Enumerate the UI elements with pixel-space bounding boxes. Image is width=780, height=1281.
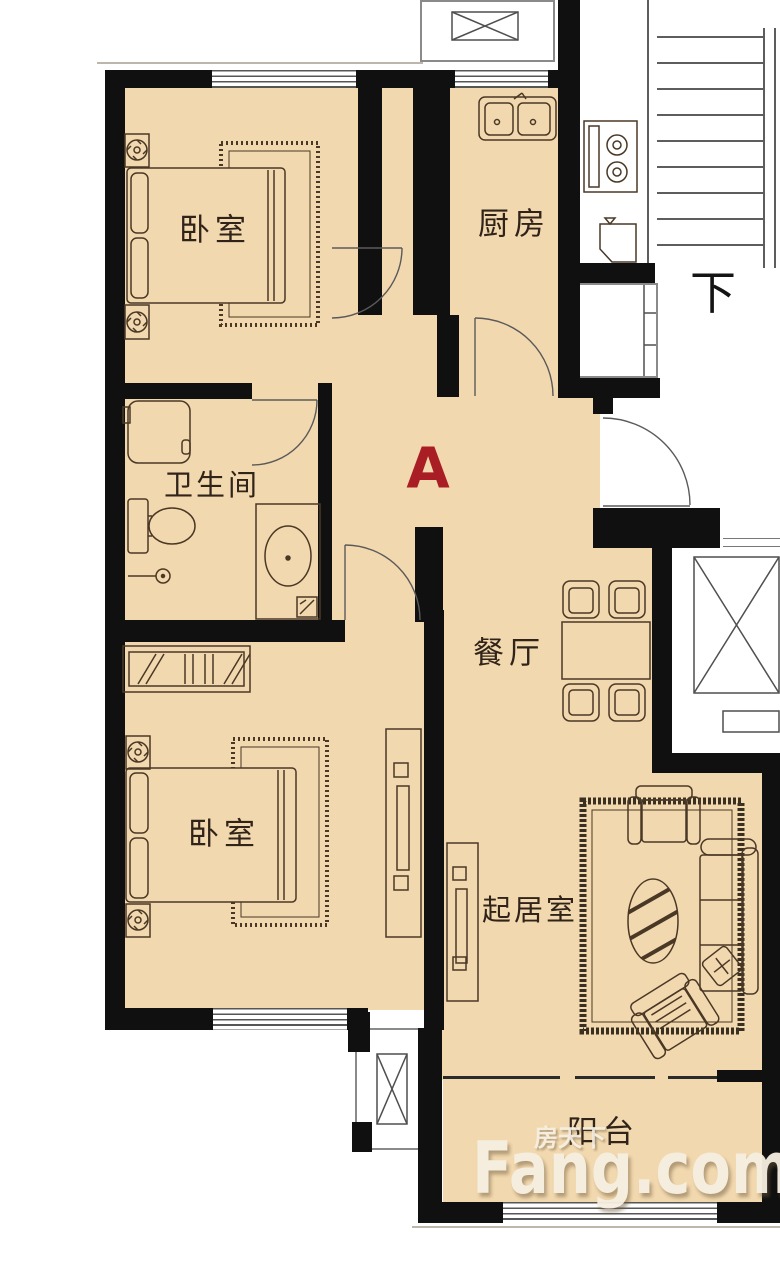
tv-cabinet-icon xyxy=(447,843,478,1001)
door-bedroom-top xyxy=(332,248,402,318)
room-label-living: 起居室 xyxy=(482,887,578,929)
shaft-cross-bottom xyxy=(377,1054,407,1124)
washing-machine-icon xyxy=(123,401,190,463)
door-bedroom-bottom xyxy=(345,545,420,620)
dining-chair-icon xyxy=(609,684,645,721)
stairs-down-label: 下 xyxy=(690,257,736,323)
rug-living xyxy=(583,801,741,1031)
kitchen-sink-icon xyxy=(479,93,556,140)
dining-table-icon xyxy=(562,622,650,679)
door-bathroom xyxy=(252,400,317,465)
shaft-cross-top xyxy=(452,12,518,40)
bathroom-vanity-icon xyxy=(256,504,320,619)
stove-icon xyxy=(584,121,637,192)
sofa-icon xyxy=(700,839,758,994)
toilet-icon xyxy=(128,499,195,553)
elevator-cross xyxy=(694,557,779,732)
planter-icon xyxy=(126,736,150,769)
floor-drain-icon xyxy=(297,597,317,617)
wardrobe-icon xyxy=(123,646,250,692)
room-label-dining: 餐厅 xyxy=(473,628,545,673)
furniture-layer xyxy=(0,0,780,1281)
bedroom-cabinet-icon xyxy=(386,729,421,937)
shower-icon xyxy=(128,569,170,583)
room-label-bedroom-bottom: 卧室 xyxy=(188,809,260,854)
armchair-icon xyxy=(628,786,700,844)
room-label-bathroom: 卫生间 xyxy=(164,462,260,504)
watermark-en-text: Fang.com xyxy=(472,1132,780,1204)
dining-chair-icon xyxy=(563,684,599,721)
dining-chair-icon xyxy=(609,581,645,618)
planter-icon xyxy=(126,904,150,937)
water-heater-icon xyxy=(600,218,636,262)
entry-cabinet-divider xyxy=(644,285,656,376)
door-kitchen xyxy=(475,318,553,396)
floor-plan: 卧室 厨房 卫生间 卧室 餐厅 起居室 阳台 A 下 房天下 Fang.com xyxy=(0,0,780,1281)
armchair-icon xyxy=(624,968,721,1060)
planter-icon xyxy=(125,134,149,167)
room-label-bedroom-top: 卧室 xyxy=(179,205,251,250)
planter-icon xyxy=(125,305,149,339)
dining-chair-icon xyxy=(563,581,599,618)
unit-type-label: A xyxy=(406,437,449,502)
room-label-kitchen: 厨房 xyxy=(478,199,550,244)
coffee-table-icon xyxy=(624,879,682,969)
door-entrance xyxy=(603,418,690,506)
